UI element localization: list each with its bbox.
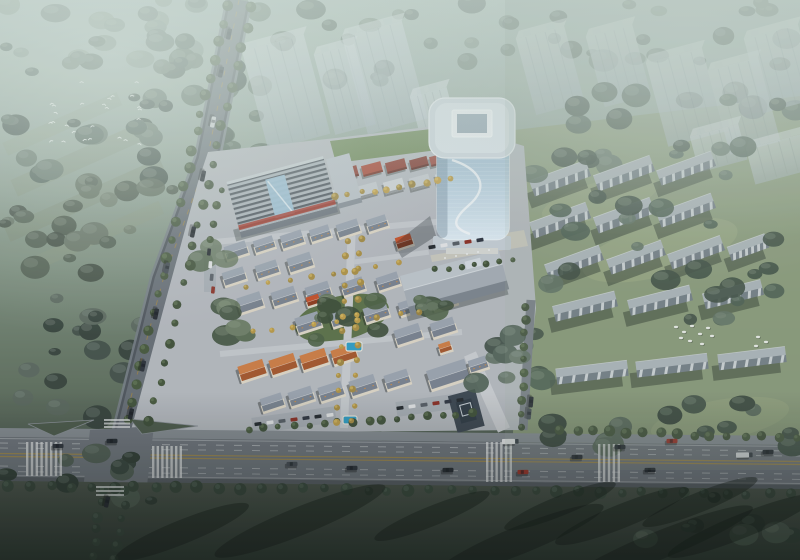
teal-cast — [0, 0, 800, 560]
masterplan-rendering: Aerial dusk rendering of a mixed-use dev… — [0, 0, 800, 560]
atmosphere — [0, 0, 800, 560]
rendering-canvas: Aerial dusk rendering of a mixed-use dev… — [0, 0, 800, 560]
